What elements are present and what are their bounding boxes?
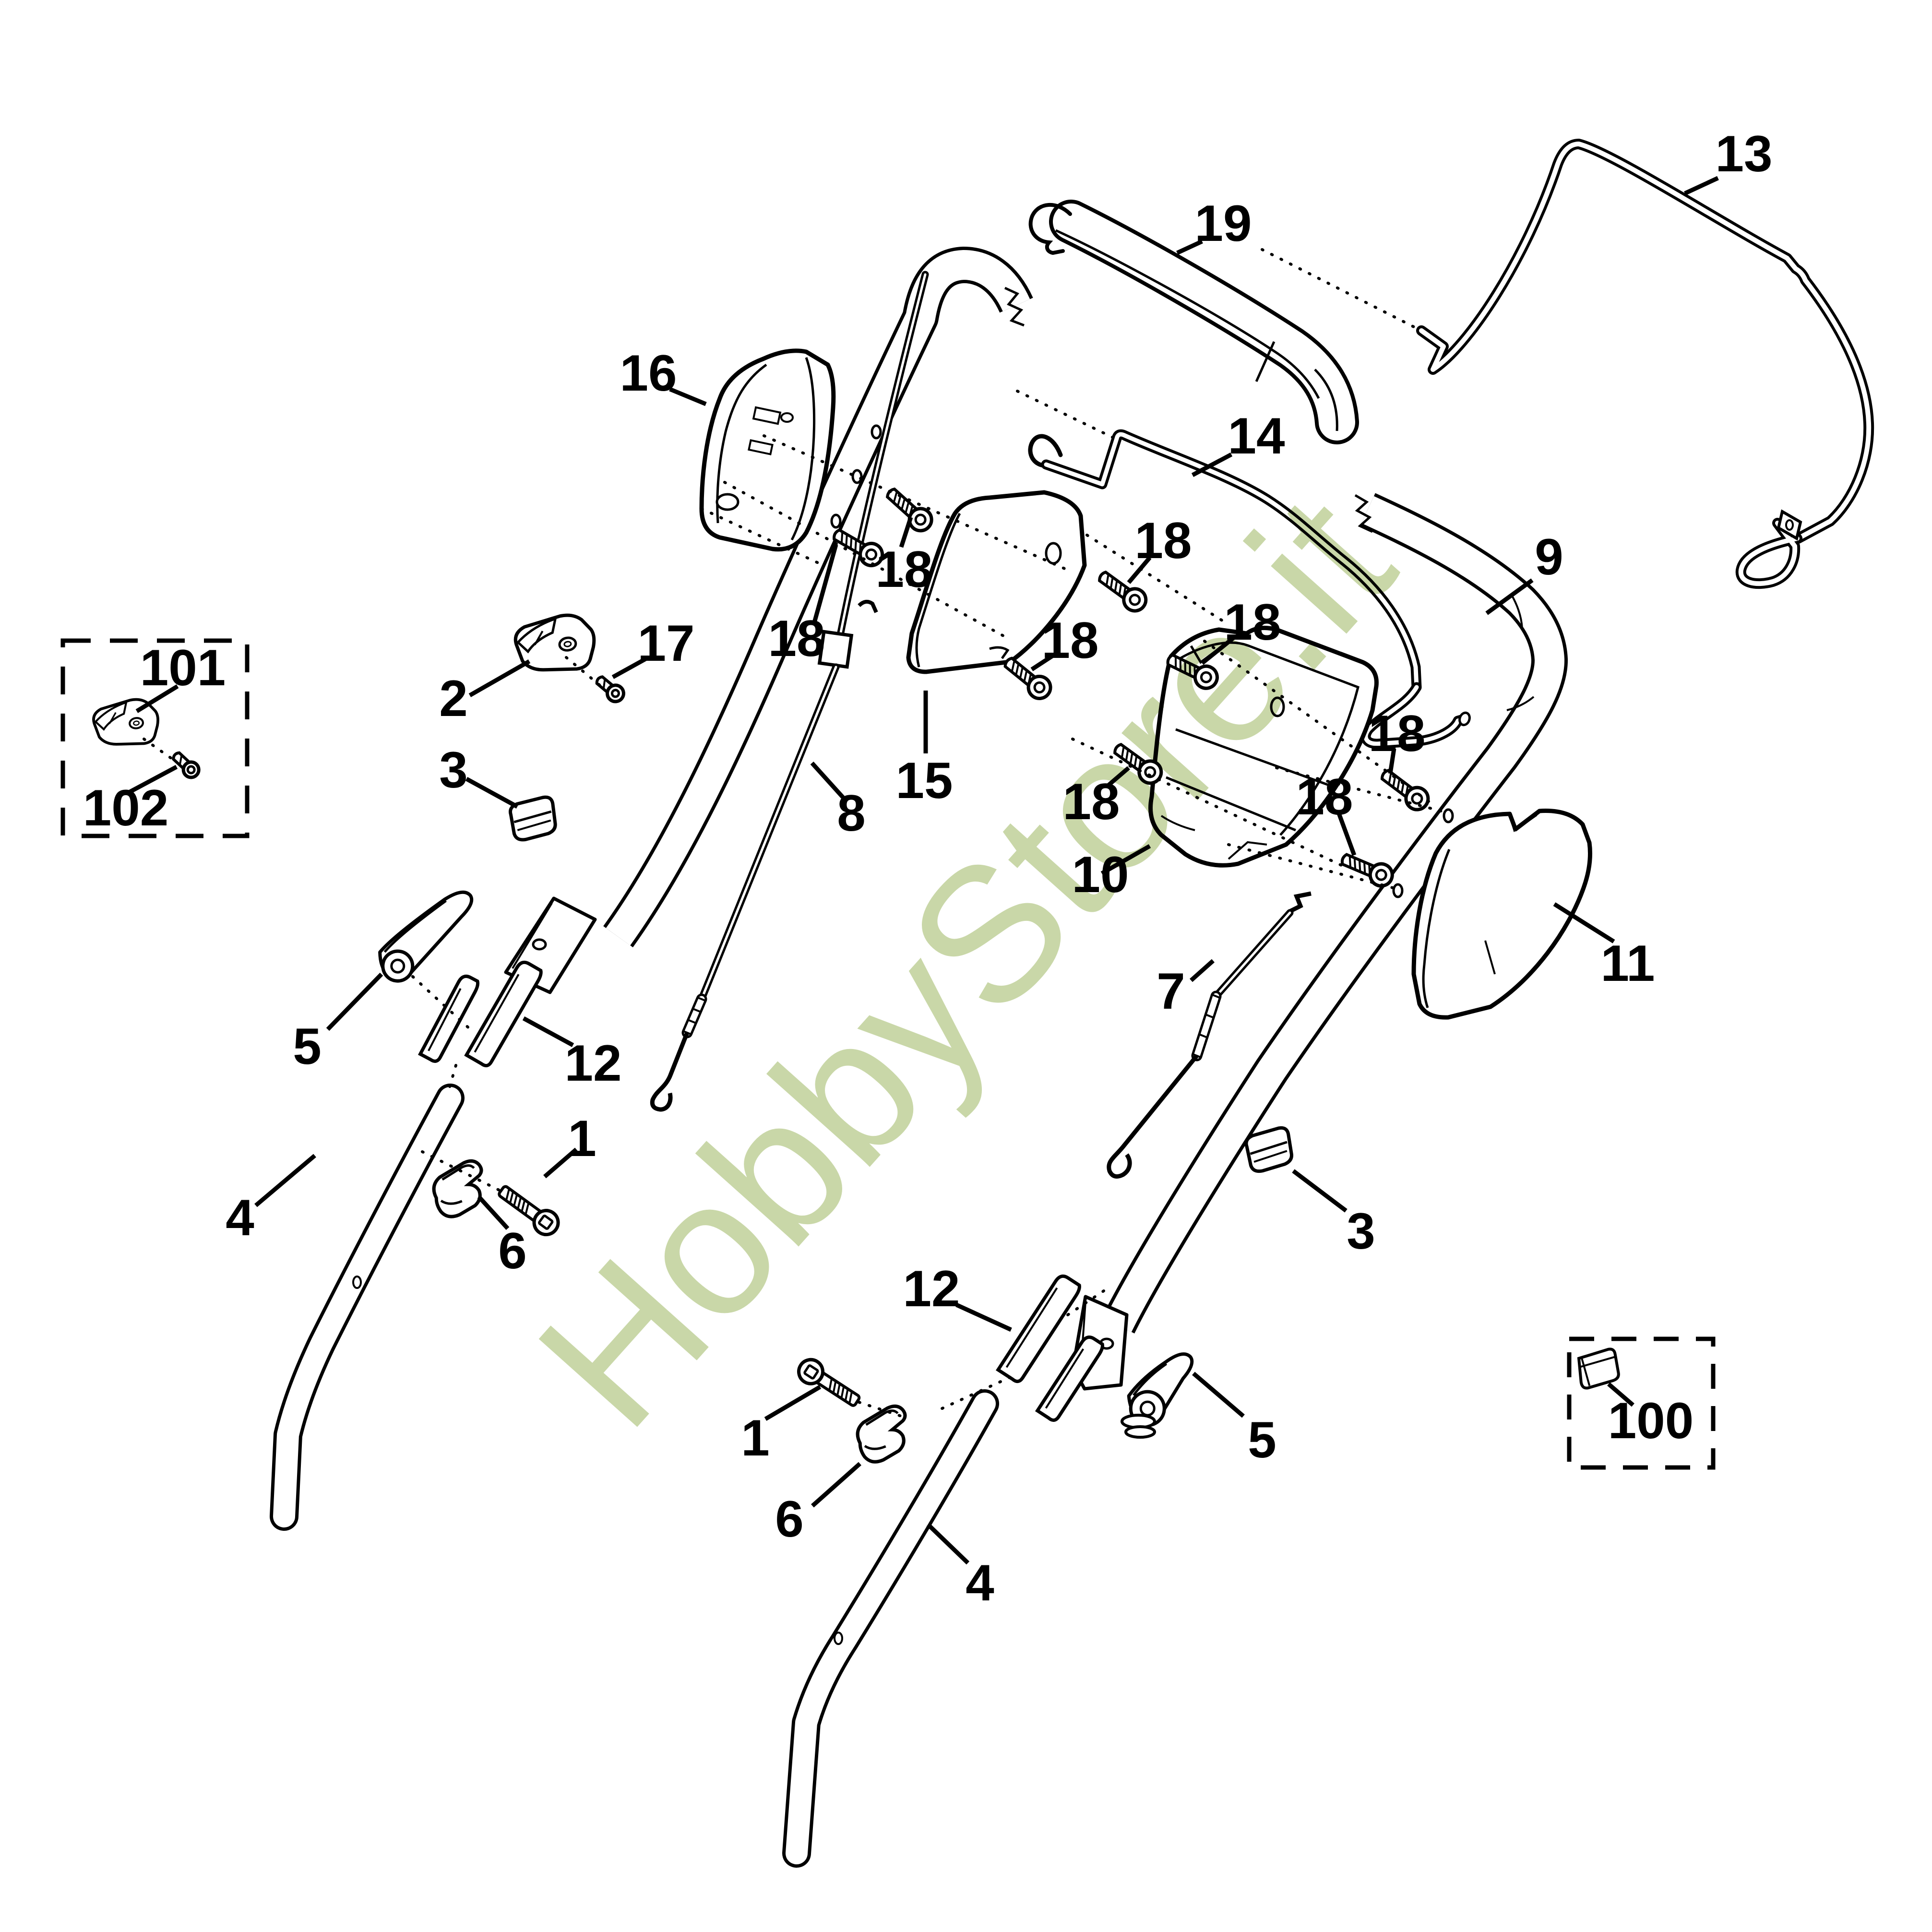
svg-text:18: 18	[1041, 611, 1098, 669]
svg-text:3: 3	[1347, 1202, 1375, 1260]
svg-text:3: 3	[439, 741, 468, 799]
svg-text:7: 7	[1157, 962, 1185, 1020]
svg-text:18: 18	[875, 540, 932, 598]
svg-text:6: 6	[498, 1222, 527, 1279]
svg-text:102: 102	[83, 779, 169, 836]
svg-text:4: 4	[966, 1554, 994, 1611]
svg-text:100: 100	[1608, 1392, 1694, 1449]
svg-text:11: 11	[1600, 934, 1655, 992]
svg-text:12: 12	[903, 1260, 960, 1317]
svg-text:13: 13	[1715, 125, 1772, 182]
svg-text:5: 5	[293, 1017, 322, 1075]
svg-text:12: 12	[564, 1034, 621, 1092]
svg-text:4: 4	[226, 1189, 254, 1246]
svg-text:10: 10	[1072, 846, 1129, 903]
svg-text:18: 18	[1062, 773, 1120, 830]
svg-text:9: 9	[1535, 528, 1563, 585]
svg-text:2: 2	[439, 669, 468, 727]
svg-text:1: 1	[741, 1409, 770, 1467]
svg-text:101: 101	[140, 639, 226, 696]
svg-text:16: 16	[620, 344, 677, 402]
svg-text:18: 18	[1224, 593, 1281, 651]
svg-text:8: 8	[837, 784, 866, 842]
svg-text:18: 18	[1368, 704, 1425, 762]
svg-text:6: 6	[775, 1490, 804, 1548]
svg-text:15: 15	[895, 751, 953, 809]
svg-text:1: 1	[568, 1109, 596, 1167]
svg-text:18: 18	[1134, 512, 1192, 569]
svg-text:19: 19	[1194, 194, 1252, 252]
svg-text:18: 18	[768, 609, 825, 667]
svg-text:18: 18	[1296, 768, 1353, 825]
svg-text:5: 5	[1248, 1411, 1276, 1468]
svg-text:17: 17	[637, 614, 694, 672]
svg-text:14: 14	[1228, 407, 1285, 465]
